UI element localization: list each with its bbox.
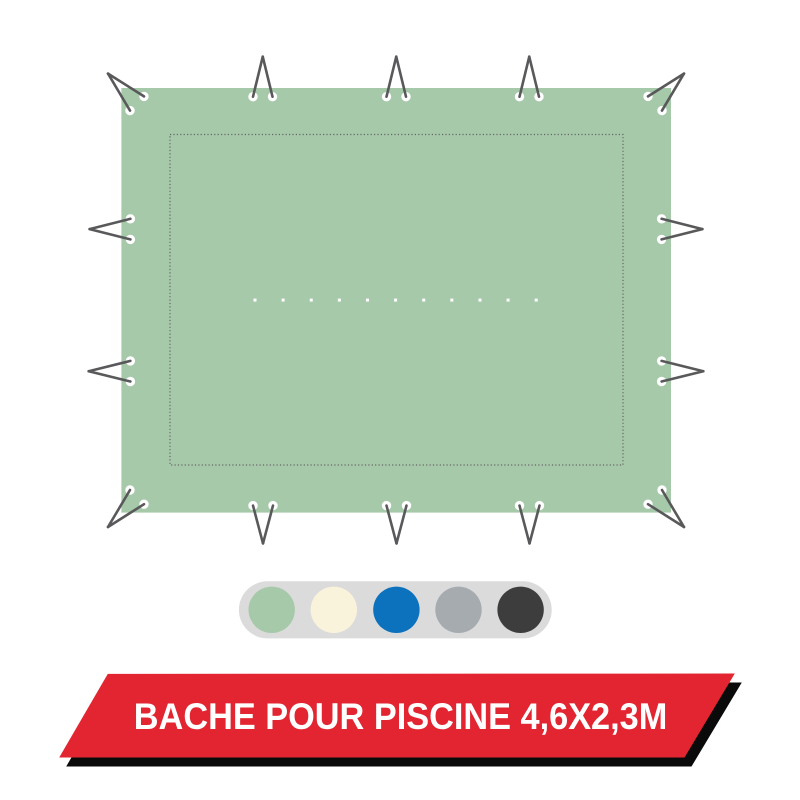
svg-text:BACHE POUR PISCINE 4,6X2,3M: BACHE POUR PISCINE 4,6X2,3M [134, 696, 668, 737]
